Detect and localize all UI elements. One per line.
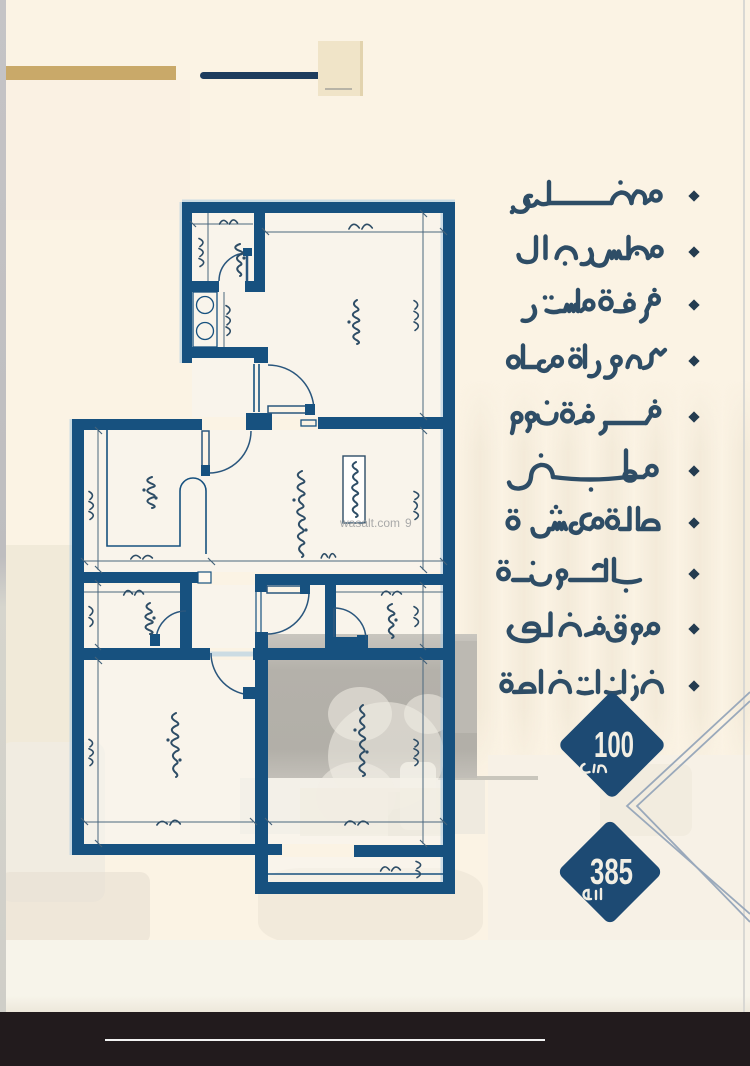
- svg-text:9: 9: [405, 516, 412, 530]
- svg-text:100: 100: [594, 724, 634, 765]
- svg-text:385: 385: [590, 851, 633, 892]
- svg-text:wasalt.com: wasalt.com: [339, 516, 400, 530]
